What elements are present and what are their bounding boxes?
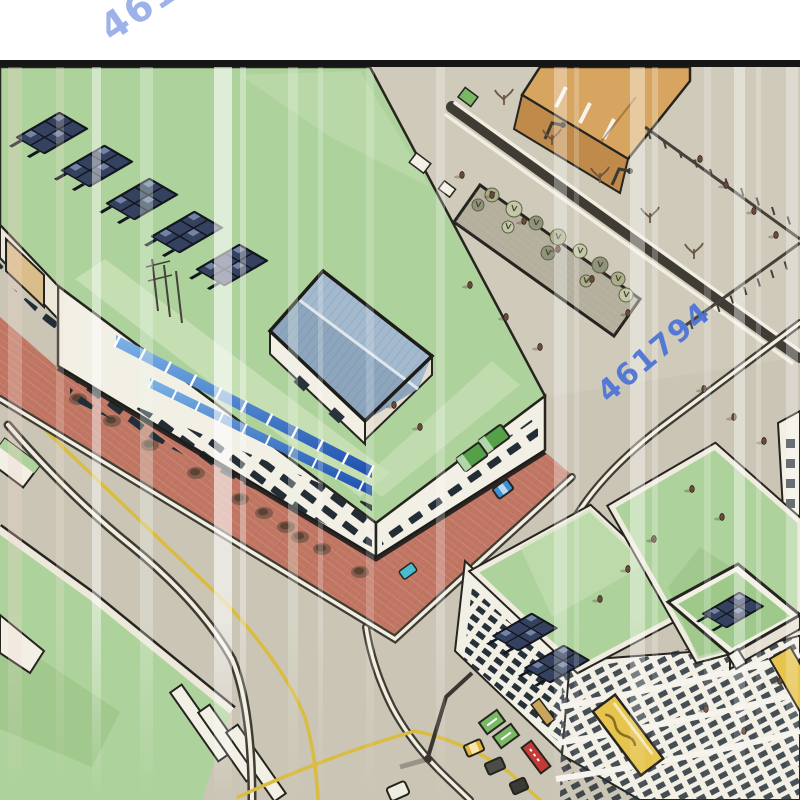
webtoon-panel: 461794 — [0, 0, 800, 800]
city-scene-svg — [0, 67, 800, 800]
panel-top-margin: 461794 — [0, 0, 800, 60]
watermark-top: 461794 — [92, 0, 258, 50]
city-illustration: 461794 — [0, 67, 800, 800]
panel-border-bar — [0, 60, 800, 67]
